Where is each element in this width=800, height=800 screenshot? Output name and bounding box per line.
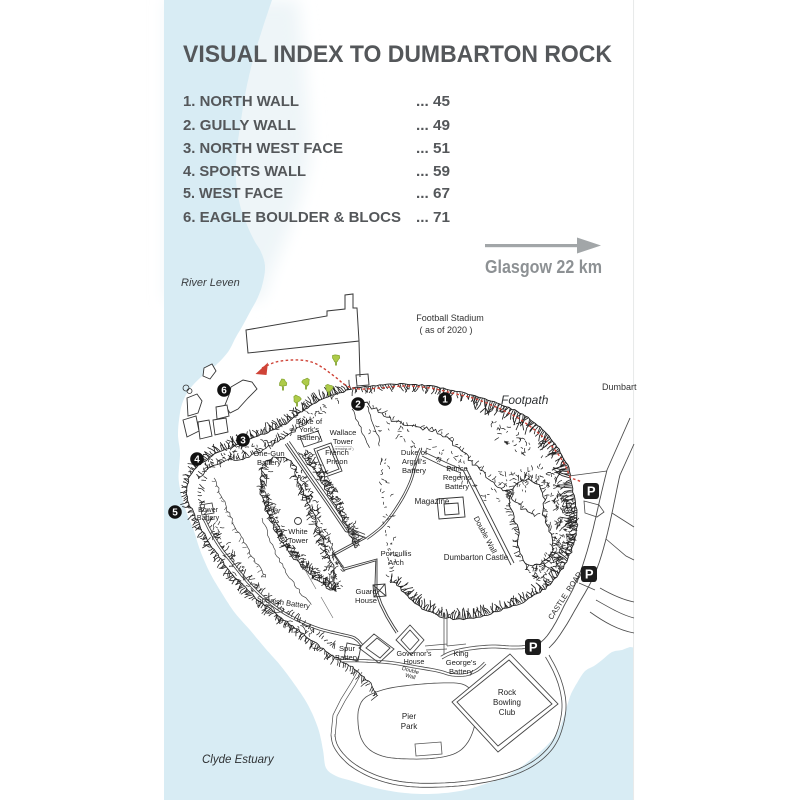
svg-text:Battery: Battery bbox=[449, 667, 473, 676]
svg-text:2. GULLY WALL: 2. GULLY WALL bbox=[183, 117, 296, 134]
svg-text:Club: Club bbox=[499, 708, 516, 717]
svg-text:Tower: Tower bbox=[288, 536, 309, 545]
svg-text:White: White bbox=[288, 527, 307, 536]
svg-text:Spur: Spur bbox=[339, 644, 356, 653]
svg-text:Dumbart: Dumbart bbox=[602, 382, 637, 392]
svg-text:French: French bbox=[325, 448, 349, 457]
svg-text:Bowling: Bowling bbox=[493, 698, 521, 707]
svg-text:House: House bbox=[355, 596, 377, 605]
svg-text:3. NORTH WEST FACE: 3. NORTH WEST FACE bbox=[183, 140, 343, 157]
svg-text:3: 3 bbox=[240, 436, 246, 447]
svg-text:House: House bbox=[404, 657, 425, 666]
svg-text:4: 4 bbox=[194, 455, 200, 466]
svg-text:Battery: Battery bbox=[297, 433, 321, 442]
svg-text:Argyll's: Argyll's bbox=[402, 457, 426, 466]
svg-text:... 67: ... 67 bbox=[416, 185, 450, 202]
svg-text:... 45: ... 45 bbox=[416, 93, 450, 110]
svg-text:Arch: Arch bbox=[388, 558, 404, 567]
svg-text:P: P bbox=[585, 567, 594, 582]
svg-text:Dumbarton Castle: Dumbarton Castle bbox=[444, 553, 509, 562]
svg-text:Pier: Pier bbox=[402, 712, 417, 721]
svg-text:Tower: Tower bbox=[333, 437, 354, 446]
svg-text:Park: Park bbox=[401, 722, 418, 731]
svg-text:Footpath: Footpath bbox=[501, 393, 549, 407]
svg-text:... 71: ... 71 bbox=[416, 209, 450, 226]
svg-text:5: 5 bbox=[172, 508, 178, 519]
svg-text:Football Stadium: Football Stadium bbox=[416, 313, 484, 323]
svg-text:Battery: Battery bbox=[335, 653, 359, 662]
svg-text:King: King bbox=[453, 649, 468, 658]
svg-text:6. EAGLE BOULDER & BLOCS: 6. EAGLE BOULDER & BLOCS bbox=[183, 209, 401, 226]
svg-text:Wallace: Wallace bbox=[330, 428, 357, 437]
svg-text:P: P bbox=[529, 640, 538, 655]
svg-text:Portcullis: Portcullis bbox=[381, 549, 412, 558]
svg-text:George's: George's bbox=[446, 658, 477, 667]
svg-text:1: 1 bbox=[442, 395, 448, 406]
svg-text:2: 2 bbox=[355, 400, 361, 411]
svg-text:P: P bbox=[587, 484, 596, 499]
svg-text:( as of 2020 ): ( as of 2020 ) bbox=[419, 325, 472, 335]
svg-text:5. WEST FACE: 5. WEST FACE bbox=[183, 185, 283, 202]
svg-text:Magazine: Magazine bbox=[415, 497, 450, 506]
svg-text:One-Gun: One-Gun bbox=[253, 449, 284, 458]
svg-text:... 49: ... 49 bbox=[416, 117, 450, 134]
svg-text:Battery: Battery bbox=[197, 515, 220, 522]
svg-text:Battery: Battery bbox=[445, 482, 469, 491]
svg-text:Regents: Regents bbox=[443, 473, 471, 482]
svg-text:Rock: Rock bbox=[498, 688, 517, 697]
svg-text:Clyde Estuary: Clyde Estuary bbox=[202, 754, 275, 766]
svg-text:Glasgow 22 km: Glasgow 22 km bbox=[485, 257, 602, 277]
svg-text:Bower: Bower bbox=[198, 507, 219, 514]
svg-text:River Leven: River Leven bbox=[181, 277, 240, 289]
svg-text:VISUAL INDEX TO DUMBARTON ROCK: VISUAL INDEX TO DUMBARTON ROCK bbox=[183, 41, 613, 68]
svg-text:6: 6 bbox=[221, 386, 227, 397]
svg-text:Battery: Battery bbox=[402, 466, 426, 475]
svg-text:Guard: Guard bbox=[355, 587, 376, 596]
svg-text:1. NORTH WALL: 1. NORTH WALL bbox=[183, 93, 299, 110]
svg-text:... 59: ... 59 bbox=[416, 163, 450, 180]
svg-text:Battery: Battery bbox=[257, 458, 281, 467]
svg-text:Prince: Prince bbox=[446, 464, 468, 473]
svg-text:4. SPORTS WALL: 4. SPORTS WALL bbox=[183, 163, 306, 180]
svg-text:Duke of: Duke of bbox=[401, 448, 428, 457]
svg-text:Prison: Prison bbox=[326, 457, 348, 466]
svg-text:... 51: ... 51 bbox=[416, 140, 450, 157]
